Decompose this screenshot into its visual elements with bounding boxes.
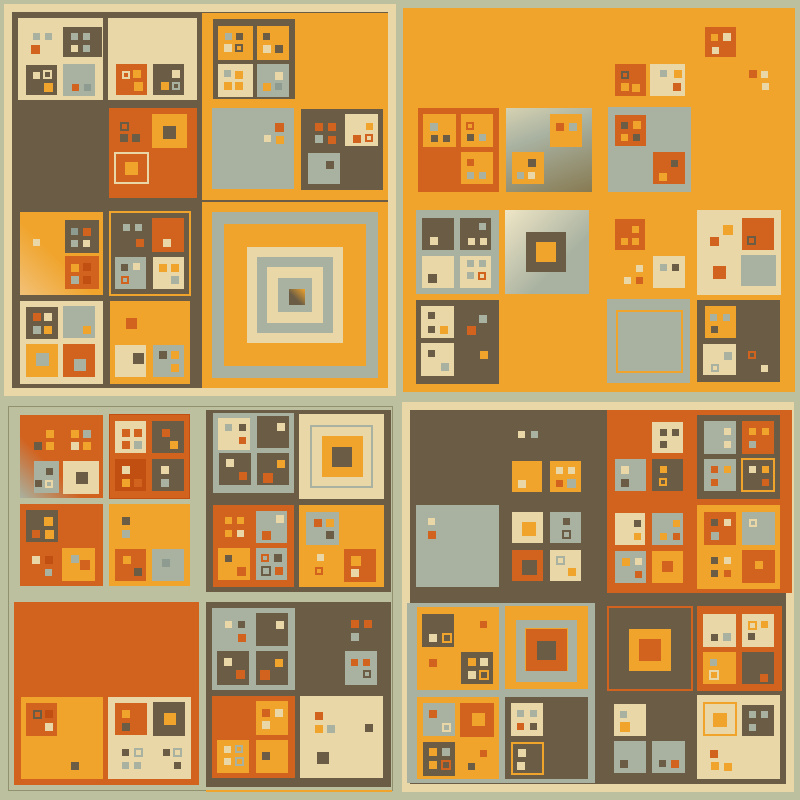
small-square (530, 723, 537, 730)
small-square (636, 277, 643, 284)
nested-panel (26, 703, 57, 736)
artwork-canvas (0, 0, 800, 800)
small-square (161, 82, 169, 90)
nested-panel (306, 512, 339, 545)
nested-panel (704, 421, 736, 454)
small-square (71, 555, 79, 563)
small-square (673, 83, 681, 91)
small-square (749, 711, 756, 718)
small-square (724, 763, 732, 771)
small-square (332, 447, 352, 467)
nested-panel (218, 64, 253, 97)
small-square (748, 633, 755, 640)
nested-panel (615, 459, 646, 491)
small-square (275, 123, 284, 132)
small-square (761, 365, 768, 372)
small-square (621, 238, 628, 245)
outline-square (45, 480, 53, 488)
small-square (274, 554, 282, 562)
small-square (135, 224, 142, 231)
small-square (327, 725, 335, 733)
small-square (711, 466, 718, 473)
outline-square (442, 633, 452, 643)
small-square (238, 621, 245, 628)
small-square (172, 70, 180, 78)
small-square (225, 555, 232, 562)
small-square (83, 45, 90, 52)
small-square (239, 424, 246, 431)
small-square (660, 70, 667, 77)
nested-panel (653, 152, 685, 184)
outline-square (172, 82, 180, 90)
small-square (711, 762, 719, 770)
small-square (536, 242, 556, 262)
small-square (134, 762, 141, 769)
small-square (277, 423, 285, 431)
small-square (749, 428, 756, 435)
small-square (710, 750, 718, 758)
small-square (635, 571, 642, 578)
small-square (32, 530, 40, 538)
small-square (275, 83, 282, 90)
outline-square (659, 478, 667, 486)
small-square (83, 240, 90, 247)
small-square (632, 84, 640, 92)
nested-panel (615, 513, 645, 545)
small-square (749, 441, 756, 448)
small-square (224, 746, 231, 753)
small-square (639, 639, 661, 661)
small-square (724, 352, 732, 360)
outline-square (122, 71, 130, 79)
small-square (83, 430, 91, 438)
small-square (431, 135, 438, 142)
small-square (528, 172, 535, 179)
nested-panel (115, 703, 147, 735)
small-square (660, 466, 667, 473)
small-square (276, 515, 284, 523)
small-square (659, 173, 667, 181)
small-square (136, 239, 144, 247)
small-square (159, 351, 167, 359)
nested-panel (26, 307, 58, 339)
small-square (262, 752, 270, 760)
nested-panel (550, 550, 581, 581)
small-square (620, 722, 630, 732)
small-square (83, 442, 91, 450)
small-square (522, 522, 536, 536)
outline-square (235, 745, 243, 753)
small-square (480, 238, 487, 245)
small-square (662, 561, 673, 572)
small-square (235, 82, 243, 90)
outline-square (261, 554, 269, 562)
small-square (263, 473, 273, 483)
nested-panel (152, 421, 184, 453)
small-square (622, 558, 630, 566)
nested-panel (256, 701, 288, 735)
outline-square (365, 134, 373, 142)
small-square (351, 659, 358, 666)
small-square (724, 441, 731, 448)
small-square (33, 326, 41, 334)
small-square (133, 353, 144, 364)
small-square (430, 237, 438, 245)
small-square (762, 479, 769, 486)
small-square (364, 620, 372, 628)
small-square (531, 431, 538, 438)
small-square (671, 760, 679, 768)
small-square (762, 428, 769, 435)
small-square (264, 135, 271, 142)
small-square (636, 265, 643, 272)
small-square (134, 479, 142, 487)
small-square (33, 33, 40, 40)
nested-panel (705, 306, 736, 338)
small-square (72, 84, 79, 91)
small-square (226, 459, 234, 467)
small-square (262, 531, 271, 540)
small-square (276, 136, 284, 144)
small-square (238, 634, 246, 642)
small-square (710, 237, 719, 246)
nested-panel (115, 257, 146, 289)
quadrant-panel (206, 790, 392, 792)
small-square (467, 260, 474, 267)
small-square (275, 709, 283, 717)
small-square (568, 568, 576, 576)
small-square (479, 223, 486, 230)
nested-panel (615, 551, 646, 583)
nested-panel (217, 651, 249, 685)
small-square (260, 670, 270, 680)
nested-panel (421, 343, 454, 376)
small-square (723, 33, 731, 41)
small-square (171, 351, 179, 359)
outline-square (33, 710, 42, 719)
small-square (275, 45, 283, 53)
outline-square (562, 530, 571, 539)
small-square (351, 633, 359, 641)
small-square (351, 620, 359, 628)
small-square (122, 710, 130, 718)
nested-panel (550, 461, 581, 492)
small-square (71, 762, 79, 770)
small-square (262, 709, 270, 717)
small-square (71, 276, 79, 284)
nested-panel (461, 152, 493, 184)
outline-square (134, 748, 143, 757)
small-square (632, 238, 639, 245)
small-square (33, 239, 40, 246)
small-square (134, 441, 142, 449)
small-square (621, 134, 628, 141)
small-square (161, 466, 169, 474)
small-square (34, 442, 42, 450)
nested-panel (742, 218, 774, 250)
small-square (170, 441, 178, 449)
outline-square (363, 670, 371, 678)
nested-panel (422, 256, 454, 288)
nested-panel (65, 220, 99, 253)
small-square (46, 430, 54, 438)
small-square (121, 264, 128, 271)
small-square (672, 264, 679, 271)
small-square (620, 711, 627, 718)
small-square (713, 266, 726, 279)
nested-panel (218, 418, 250, 450)
small-square (45, 33, 52, 40)
small-square (74, 359, 86, 371)
small-square (710, 659, 717, 666)
small-square (122, 466, 130, 474)
small-square (480, 351, 488, 359)
small-square (80, 560, 90, 570)
small-square (163, 749, 170, 756)
small-square (528, 159, 536, 167)
small-square (263, 33, 270, 40)
small-square (289, 289, 305, 305)
nested-panel (153, 345, 184, 377)
small-square (351, 556, 361, 566)
nested-panel (614, 741, 646, 773)
small-square (518, 480, 526, 488)
small-square (45, 556, 53, 564)
small-square (569, 123, 577, 131)
small-square (84, 84, 91, 91)
small-square (724, 428, 731, 435)
small-square (621, 83, 629, 91)
small-square (35, 480, 42, 487)
small-square (723, 225, 733, 235)
outline-square (315, 567, 323, 575)
nested-panel (256, 740, 288, 773)
small-square (660, 264, 667, 271)
outline-square (442, 723, 451, 732)
small-square (479, 315, 487, 323)
small-square (659, 760, 666, 767)
nested-panel (422, 218, 454, 250)
small-square (711, 34, 718, 41)
outline-square (235, 44, 243, 52)
small-square (239, 437, 246, 444)
small-square (760, 674, 768, 682)
nested-panel (705, 27, 736, 57)
small-square (134, 429, 142, 437)
nested-panel (614, 704, 646, 736)
nested-panel (62, 548, 95, 581)
small-square (235, 71, 243, 79)
small-square (429, 634, 437, 642)
small-square (315, 712, 323, 720)
small-square (236, 33, 243, 40)
small-square (711, 326, 718, 333)
small-square (83, 33, 90, 40)
nested-panel (308, 153, 340, 184)
small-square (239, 472, 247, 480)
small-square (467, 134, 474, 141)
outline-square (709, 670, 719, 680)
nested-panel (257, 453, 289, 485)
small-square (315, 123, 323, 131)
small-square (711, 557, 718, 564)
outline-panel (511, 742, 544, 775)
nested-panel (461, 114, 493, 147)
small-square (134, 568, 142, 576)
small-square (76, 472, 88, 484)
nested-panel (742, 614, 774, 647)
small-square (134, 82, 143, 91)
small-square (326, 161, 334, 169)
small-square (518, 431, 525, 438)
small-square (46, 468, 53, 475)
small-square (428, 518, 435, 525)
nested-panel (63, 27, 102, 57)
small-square (126, 318, 137, 329)
small-square (224, 82, 232, 90)
nested-panel (550, 114, 582, 147)
small-square (224, 70, 231, 77)
small-square (749, 724, 756, 731)
small-square (480, 750, 487, 757)
small-square (762, 466, 769, 473)
outline-square (621, 71, 629, 79)
nested-panel (115, 549, 146, 581)
small-square (440, 326, 448, 334)
small-square (749, 70, 757, 78)
small-square (277, 460, 285, 468)
small-square (71, 430, 79, 438)
nested-panel (653, 256, 685, 288)
small-square (132, 134, 140, 142)
small-square (724, 557, 731, 564)
small-square (517, 710, 524, 717)
nested-panel (219, 453, 251, 485)
nested-panel (615, 115, 646, 146)
small-square (537, 641, 556, 660)
small-square (163, 239, 171, 247)
small-square (33, 313, 41, 321)
nested-panel (65, 256, 99, 289)
small-square (660, 441, 667, 448)
small-square (225, 621, 232, 628)
nested-panel (615, 219, 645, 250)
small-square (479, 260, 486, 267)
small-square (133, 70, 141, 78)
nested-panel (153, 257, 184, 289)
outline-square (479, 670, 489, 680)
small-square (671, 160, 678, 167)
small-square (467, 272, 474, 279)
small-square (620, 760, 628, 768)
small-square (36, 353, 49, 366)
small-square (567, 479, 576, 488)
small-square (366, 123, 373, 130)
small-square (761, 621, 768, 628)
small-square (317, 752, 329, 764)
small-square (428, 312, 435, 319)
small-square (83, 326, 91, 334)
small-square (83, 263, 91, 271)
small-square (365, 724, 373, 732)
outline-square (173, 748, 182, 757)
small-square (517, 723, 524, 730)
small-square (32, 556, 40, 564)
small-square (428, 531, 436, 539)
small-square (122, 762, 129, 769)
small-square (44, 313, 52, 321)
small-square (225, 33, 232, 40)
outline-square (747, 236, 756, 245)
small-square (71, 45, 78, 52)
nested-panel (218, 26, 253, 60)
small-square (674, 70, 682, 78)
nested-panel (34, 461, 59, 493)
outline-square (235, 757, 244, 766)
small-square (44, 83, 53, 92)
small-square (479, 172, 486, 179)
outline-square (120, 122, 129, 131)
small-square (263, 83, 271, 91)
small-square (171, 364, 179, 372)
small-square (123, 556, 131, 564)
small-square (634, 520, 641, 527)
small-square (225, 517, 232, 524)
nested-panel (704, 459, 736, 491)
nested-panel (512, 152, 544, 184)
small-square (44, 517, 53, 526)
small-square (621, 466, 629, 474)
small-square (660, 533, 667, 540)
small-square (429, 659, 437, 667)
small-square (429, 710, 437, 718)
small-square (263, 45, 271, 53)
small-square (224, 44, 232, 52)
small-square (672, 429, 679, 436)
small-square (621, 479, 629, 487)
nested-panel (742, 512, 775, 545)
small-square (162, 429, 170, 437)
small-square (314, 519, 322, 527)
small-square (673, 533, 680, 540)
small-square (363, 659, 370, 666)
small-square (122, 429, 130, 437)
small-square (159, 264, 167, 272)
small-square (71, 228, 78, 235)
nested-panel (257, 64, 289, 97)
small-square (326, 531, 334, 539)
small-square (123, 224, 130, 231)
small-square (660, 429, 667, 436)
small-square (468, 658, 476, 666)
small-square (45, 710, 53, 718)
small-square (224, 658, 232, 666)
small-square (634, 533, 641, 540)
small-square (563, 518, 570, 525)
nested-panel (652, 459, 683, 491)
small-square (125, 162, 138, 175)
small-square (237, 517, 244, 524)
small-square (45, 530, 54, 539)
small-square (224, 758, 231, 765)
small-square (45, 569, 52, 576)
small-square (633, 134, 640, 141)
small-square (317, 554, 324, 561)
small-square (122, 517, 130, 525)
outline-square (441, 760, 451, 770)
small-square (225, 424, 232, 431)
nested-panel (460, 256, 491, 288)
